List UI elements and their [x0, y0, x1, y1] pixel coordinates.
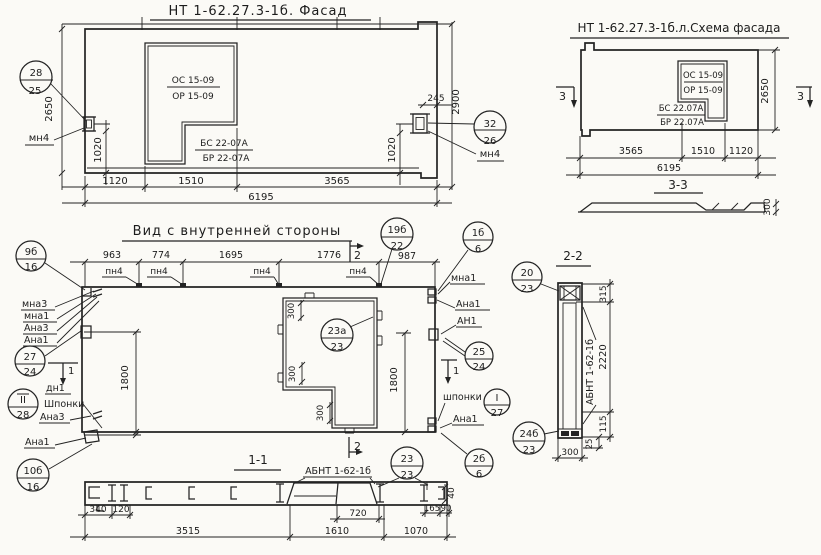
schema-section-mark-3-left: 3 [556, 87, 577, 108]
inner-1800-dimension-lines [84, 329, 411, 438]
inner-dim-1800-left: 1800 [120, 365, 131, 390]
facade-window-label-bs: БС 22-07А [200, 139, 248, 149]
label-ana3: Ана3 [24, 323, 49, 334]
facade-callout-28-25: 28 25 [20, 61, 53, 97]
facade-dim-1020-left: 1020 [93, 137, 104, 162]
callout-top: 24б [520, 429, 539, 440]
dim-120: 120 [112, 505, 129, 515]
schema-dim-1510: 1510 [691, 146, 715, 157]
callout-top: 25 [473, 347, 486, 358]
label-abnt-vertical: АБНТ 1-62-1б [585, 339, 596, 405]
callout-bottom: 22 [391, 241, 404, 252]
anchor-label-pn4-2: пн4 [150, 267, 168, 277]
inner-dim-1800-right: 1800 [389, 367, 400, 392]
pn4-underlines-and-leaders [102, 277, 379, 285]
callout-top: 20 [521, 268, 534, 279]
schema-section-mark-3-right: 3 [796, 87, 813, 108]
section-3-3-title: 3-3 [668, 178, 688, 192]
facade-callout-32-26: 32 26 [474, 111, 506, 147]
facade-anchor-plates [82, 114, 430, 133]
callout-top: 23 [401, 454, 414, 465]
callout-20-23: 20 23 [512, 262, 559, 295]
callout-top: 19б [388, 225, 407, 236]
inner-dim-1776: 1776 [317, 250, 341, 261]
section-3-3-dim-300: 300 [763, 198, 773, 215]
section-2-2-title: 2-2 [563, 249, 583, 263]
schema-dim-6195: 6195 [657, 163, 681, 174]
callout-bottom: 6 [476, 469, 482, 480]
dim-25: 25 [585, 439, 595, 450]
facade-dim-1510: 1510 [178, 176, 203, 187]
facade-dim-245: 245 [427, 94, 444, 104]
plate-rebar-brackets [146, 487, 237, 499]
label-shponki-right: шпонки [443, 392, 482, 403]
section-2-2-panel-outline [558, 283, 582, 438]
facade-drawing: НТ 1-62.27.3-1б. Фасад ОС 15-09 ОР 15-09… [20, 4, 506, 207]
label-ana1-right-bottom: Ана1 [453, 414, 478, 425]
section-mark-1-right: 1 [441, 360, 459, 384]
facade-leader-lines [51, 84, 476, 154]
dim-300-bottom: 300 [561, 448, 578, 458]
facade-dim-6195: 6195 [248, 192, 273, 203]
facade-window-label-os: ОС 15-09 [172, 76, 215, 86]
schema-window-label-or: ОР 15-09 [683, 86, 722, 96]
callout-top: 10б [24, 466, 43, 477]
dim-115: 115 [599, 415, 609, 432]
callout-top: 32 [484, 119, 497, 130]
callout-bottom: 27 [491, 408, 504, 419]
callout-bottom: 6 [475, 244, 481, 255]
section-1-1-drawing: 1-1 АБНТ 1-62-1б 23 23 340 120 720 165 9… [70, 447, 457, 541]
facade-dim-2650: 2650 [44, 96, 55, 121]
callout-25-24: 25 24 [443, 338, 493, 373]
label-ana3-bottom: Ана3 [40, 412, 65, 423]
facade-dim-1120: 1120 [102, 176, 127, 187]
callout-bottom: 28 [17, 410, 30, 421]
callout-bottom: 16 [27, 482, 40, 493]
dim-1610: 1610 [325, 526, 349, 537]
inner-view-drawing: Вид с внутренней стороны 963 774 1695 17… [8, 218, 559, 493]
schema-dim-2650: 2650 [760, 78, 771, 103]
label-mna1-right: мна1 [451, 273, 476, 284]
section-mark-label: 1 [453, 366, 459, 377]
section-2-2-drawing: 2-2 АБНТ 1-62-1б 315 2220 115 25 300 [552, 249, 614, 462]
facade-anchor-left-core [87, 120, 92, 128]
schema-dimension-lines [566, 50, 780, 179]
inner-dim-1695: 1695 [219, 250, 243, 261]
dim-720: 720 [349, 509, 366, 519]
anchor-label-pn4-4: пн4 [349, 267, 367, 277]
section-1-1-dimension-ticks [82, 484, 452, 540]
inner-left-edge-anchors [82, 288, 102, 443]
callout-bottom: 23 [523, 445, 536, 456]
callout-top: 28 [30, 68, 43, 79]
facade-title: НТ 1-62.27.3-1б. Фасад [169, 4, 348, 19]
inner-dim-963: 963 [103, 250, 121, 261]
inner-dim-300-c: 300 [316, 405, 326, 421]
schema-dim-3565: 3565 [619, 146, 643, 157]
section-1-1-plate-outline [85, 482, 447, 505]
facade-dim-2900: 2900 [451, 89, 462, 114]
callout-bottom: 23 [331, 342, 344, 353]
section-mark-label: 2 [354, 440, 361, 453]
callout-bottom: 24 [24, 367, 37, 378]
inner-panel-outline [82, 287, 435, 432]
callout-bottom: 16 [25, 262, 38, 273]
inner-dim-300-b: 300 [288, 366, 298, 382]
section-mark-1-left: 1 [48, 363, 78, 385]
inner-right-edge-anchors [428, 289, 438, 432]
callout-24b-23: 24б 23 [513, 422, 559, 456]
blueprint-sheet: НТ 1-62.27.3-1б. Фасад ОС 15-09 ОР 15-09… [0, 0, 821, 555]
facade-panel-outline [85, 22, 437, 178]
dim-90: 90 [441, 504, 452, 514]
section-mark-2-bottom: 2 [349, 437, 363, 458]
label-abnt: АБНТ 1-62-1б [305, 466, 371, 477]
panel-top-anchor-hatch [560, 286, 580, 300]
anchor-label-pn4-3: пн4 [253, 267, 271, 277]
section-mark-2-top: 2 [350, 241, 364, 262]
schema-dim-1120: 1120 [729, 146, 753, 157]
label-dn1: дн1 [46, 383, 65, 394]
callout-top: II [20, 395, 26, 406]
label-mna1: мна1 [24, 311, 49, 322]
dim-3515: 3515 [176, 526, 200, 537]
label-ana1: Ана1 [24, 335, 49, 346]
dim-340: 340 [89, 505, 106, 515]
facade-dim-3565: 3565 [324, 176, 349, 187]
callout-10b-16: 10б 16 [17, 444, 92, 493]
schema-window-label-bs: БС 22.07А [659, 104, 704, 114]
callout-23a-23: 23а 23 [321, 317, 373, 353]
section-mark-label: 3 [559, 90, 566, 103]
facade-dim-1020-right: 1020 [387, 137, 398, 162]
blueprint-canvas: НТ 1-62.27.3-1б. Фасад ОС 15-09 ОР 15-09… [0, 0, 821, 555]
callout-top: 1б [472, 228, 485, 239]
panel-bottom-anchor-marks [561, 431, 579, 436]
inner-dim-987: 987 [398, 251, 416, 262]
label-mna3: мна3 [22, 299, 47, 310]
callout-9b-16: 9б 16 [16, 241, 85, 290]
schema-title: НТ 1-62.27.3-1б.л.Схема фасада [578, 21, 781, 35]
callout-top: 27 [24, 352, 37, 363]
section-mark-label: 2 [354, 249, 361, 262]
schema-window-label-os: ОС 15-09 [683, 71, 723, 81]
schema-drawing: НТ 1-62.27.3-1б.л.Схема фасада ОС 15-09 … [556, 21, 813, 216]
facade-window-label-br: БР 22-07А [203, 154, 251, 164]
callout-2b-6: 2б 6 [441, 433, 493, 480]
section-mark-label: 3 [797, 90, 804, 103]
label-shponki-left: Шпонки [44, 399, 84, 410]
callout-top: 2б [473, 454, 486, 465]
callout-top: 23а [328, 326, 347, 337]
plate-abnt-block [287, 483, 377, 504]
inner-dim-774: 774 [152, 250, 170, 261]
label-ana1-bottom: Ана1 [25, 437, 50, 448]
inner-view-title: Вид с внутренней стороны [133, 224, 342, 239]
panel-body-lines [558, 303, 582, 429]
anchor-label-pn4-1: пн4 [105, 267, 123, 277]
callout-bottom: 23 [521, 284, 534, 295]
plate-anchor-bars [276, 484, 444, 502]
callout-top: I [496, 393, 499, 404]
label-ana1-right: Ана1 [456, 299, 481, 310]
dim-315: 315 [599, 285, 609, 302]
callout-bottom: 25 [29, 86, 42, 97]
callout-II-28: II 28 [8, 389, 38, 421]
facade-anchor-right [413, 114, 427, 133]
callout-bottom: 23 [401, 470, 414, 481]
dim-165: 165 [424, 504, 440, 514]
shponki-left-leader [83, 404, 102, 428]
label-an1-right: АН1 [457, 316, 477, 327]
callout-bottom: 26 [484, 136, 497, 147]
section-mark-label: 1 [68, 366, 74, 377]
callout-23-23: 23 23 [378, 447, 428, 487]
facade-window-label-or: ОР 15-09 [172, 92, 214, 102]
callout-I-27: I 27 [484, 389, 510, 419]
dim-40: 40 [447, 487, 457, 499]
facade-anchor-right-core [416, 118, 424, 130]
callout-top: 9б [25, 247, 38, 258]
facade-anchor-label-right: мн4 [480, 149, 500, 160]
facade-anchor-label-left: мн4 [29, 133, 49, 144]
inner-dim-300-a: 300 [287, 303, 297, 319]
shponki-right-leader [438, 403, 445, 421]
section-1-1-title: 1-1 [248, 453, 268, 467]
dim-1070: 1070 [404, 526, 428, 537]
callout-bottom: 24 [473, 362, 486, 373]
plate-detail-lines [294, 482, 427, 496]
dim-2220: 2220 [598, 344, 609, 369]
